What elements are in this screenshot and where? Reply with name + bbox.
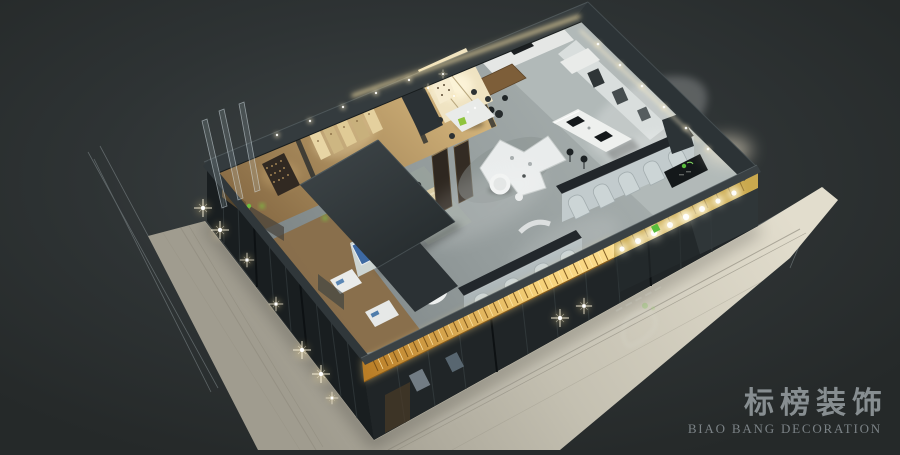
watermark-brand-en: BIAO BANG DECORATION	[688, 421, 882, 437]
plant-accent	[323, 216, 328, 221]
watermark-brand-cn: 标榜装饰	[688, 388, 888, 420]
scene-render	[0, 0, 900, 450]
brand-logo-green	[682, 164, 686, 168]
rendering-stage: 标榜装饰 BIAO BANG DECORATION	[0, 0, 900, 450]
plant-accent	[260, 204, 265, 209]
watermark: 标榜装饰 BIAO BANG DECORATION	[688, 388, 882, 437]
